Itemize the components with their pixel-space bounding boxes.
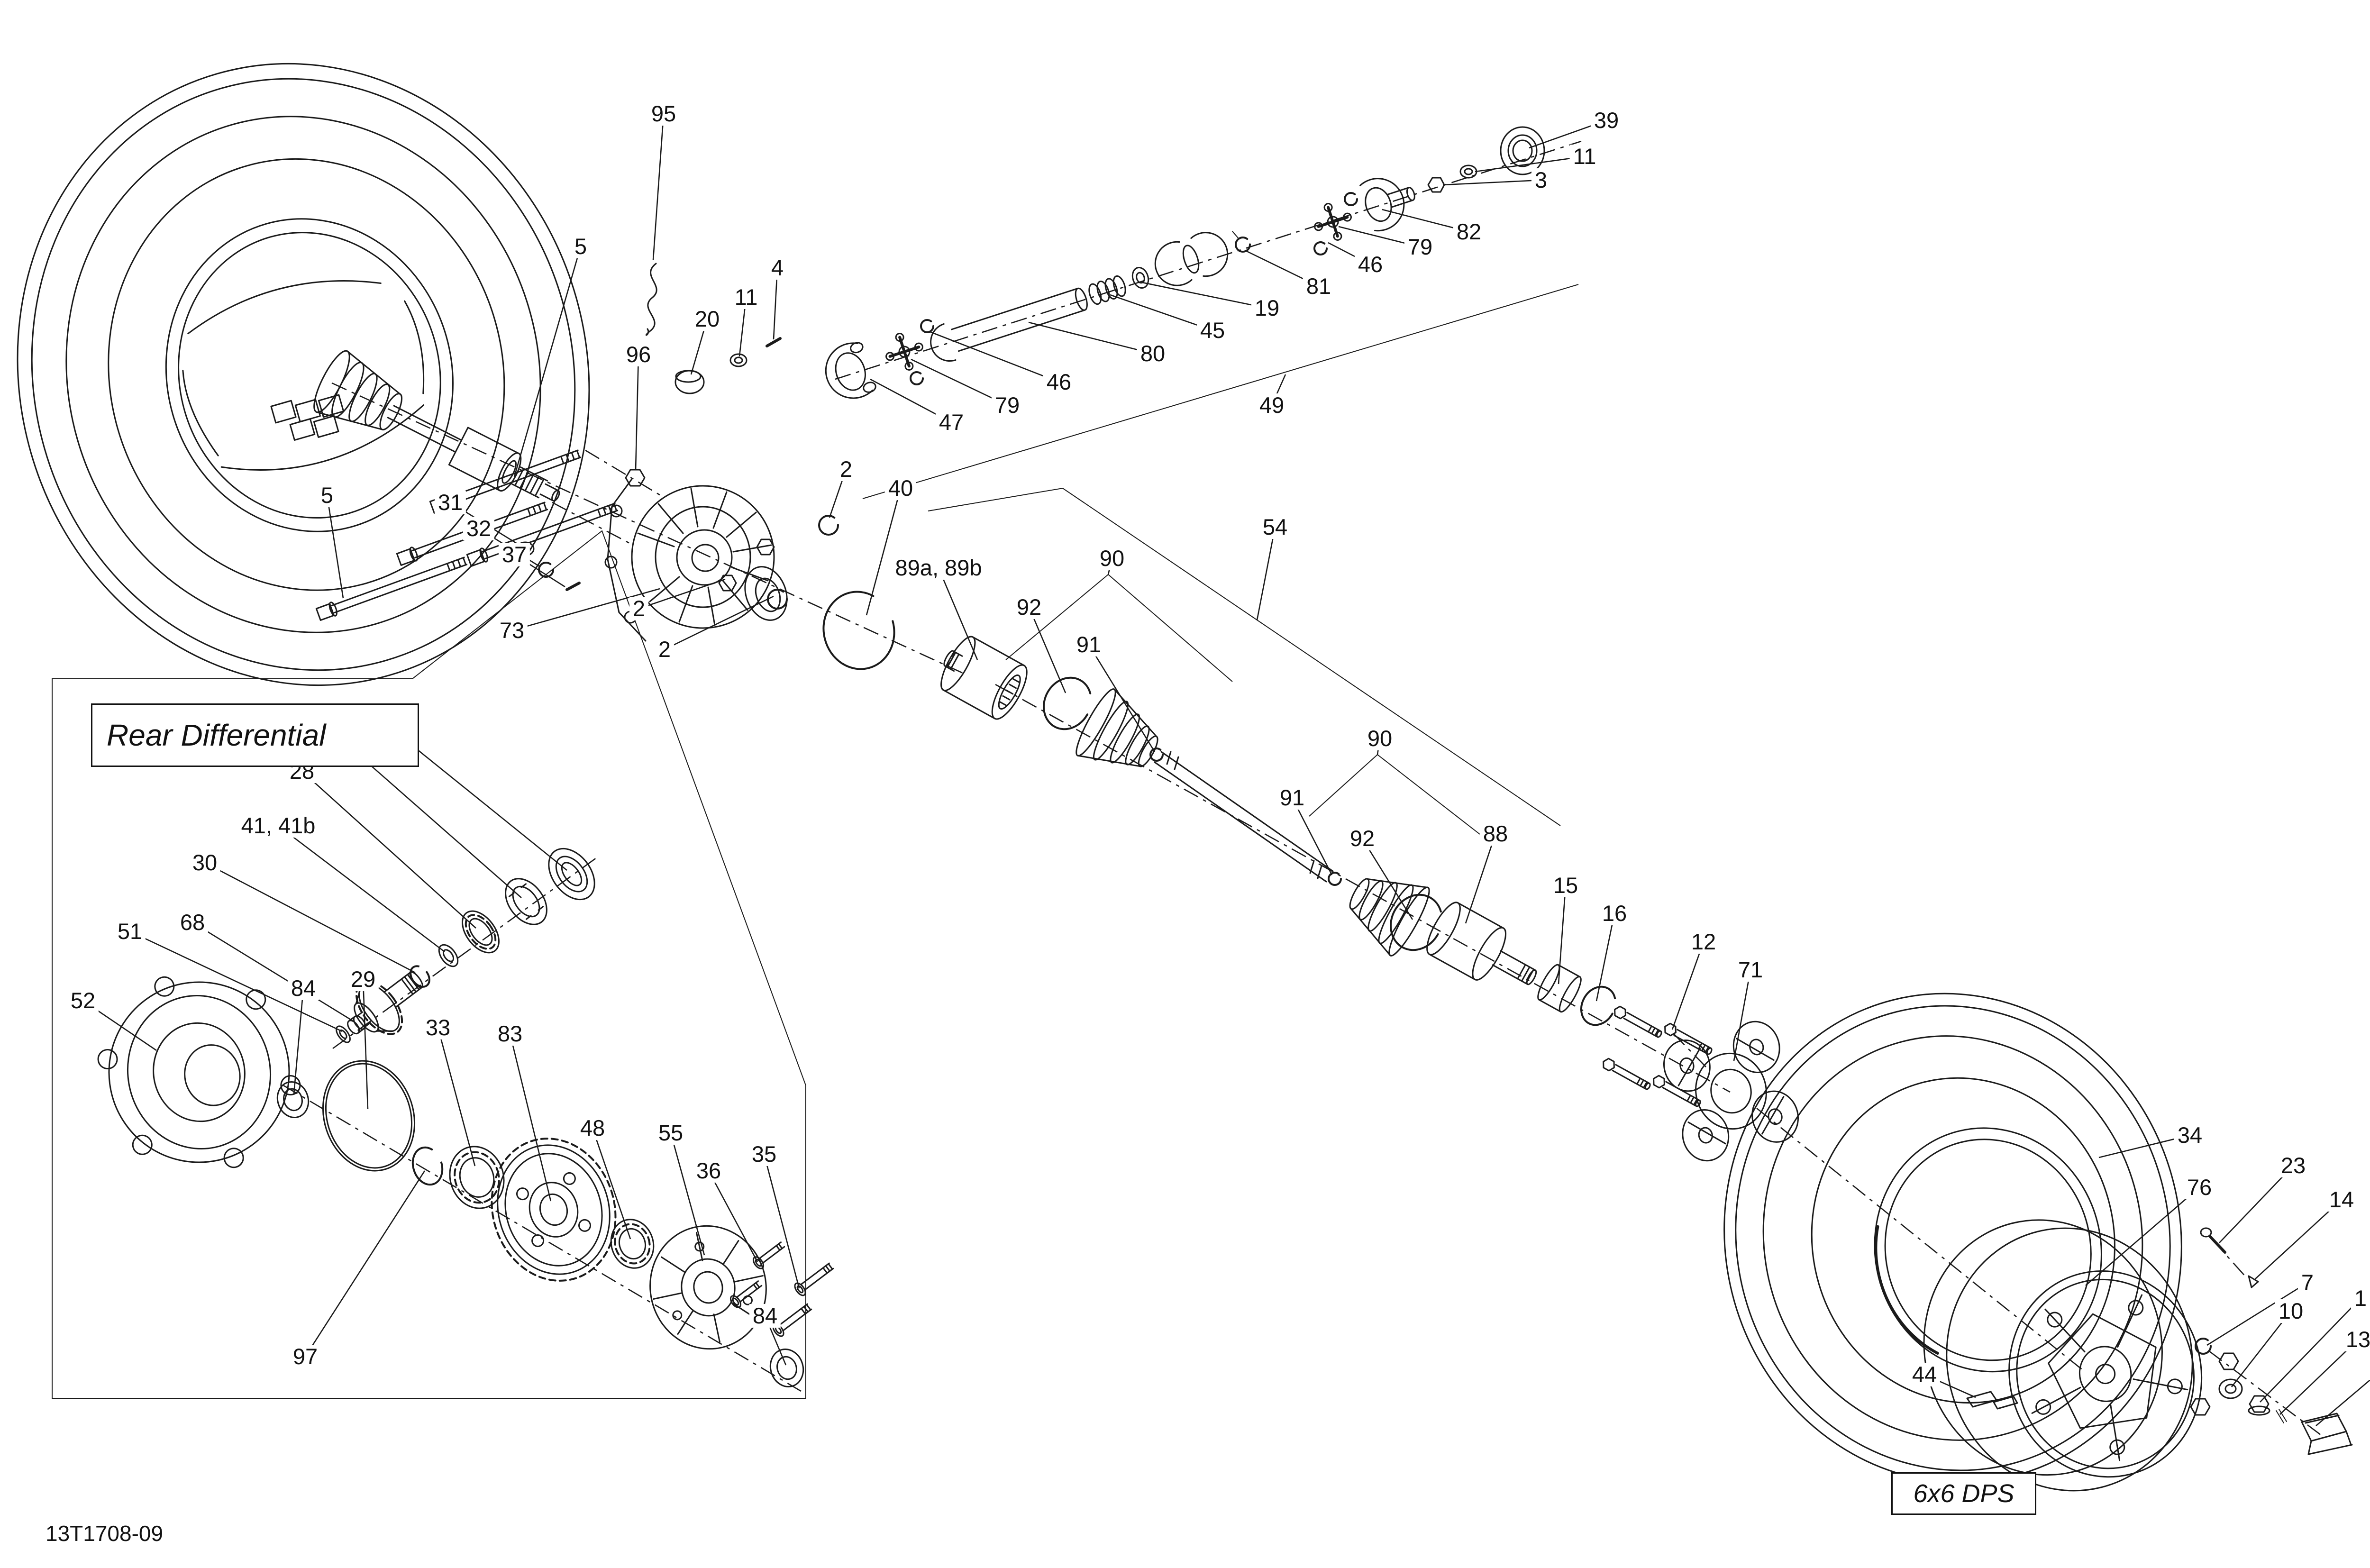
callout-label-88: 88 <box>1480 822 1511 846</box>
callout-leader <box>665 596 774 649</box>
callout-leader <box>1596 913 1614 1001</box>
callout-leader <box>592 1128 630 1239</box>
callout-label-30: 30 <box>189 851 220 875</box>
callout-label-45: 45 <box>1197 319 1228 342</box>
callout-label-20: 20 <box>692 307 723 331</box>
callout-label-83: 83 <box>494 1022 526 1046</box>
callout-leader <box>302 771 476 928</box>
callout-leader <box>1142 283 1267 308</box>
callout-label-73: 73 <box>496 619 528 642</box>
callout-leader <box>1089 645 1155 752</box>
callout-leader <box>438 1028 475 1166</box>
callout-leader <box>1257 527 1275 620</box>
callout-leader <box>514 246 581 477</box>
callout-label-90: 90 <box>1096 547 1128 570</box>
callout-label-5: 5 <box>571 235 590 258</box>
callout-label-84: 84 <box>749 1304 781 1328</box>
callout-label-5: 5 <box>318 483 337 507</box>
callout-label-1: 1 <box>2351 1286 2370 1310</box>
callout-label-32: 32 <box>463 517 494 540</box>
callout-leader <box>327 495 343 598</box>
callout-leader <box>639 579 725 609</box>
callout-leader <box>866 488 901 615</box>
callout-label-46: 46 <box>1355 253 1386 276</box>
callout-label-19: 19 <box>1251 296 1283 320</box>
callout-label-4: 4 <box>768 256 787 280</box>
callout-label-90: 90 <box>1364 727 1395 750</box>
callout-leader <box>1443 180 1541 185</box>
callout-leader <box>305 1171 425 1357</box>
callout-label-39: 39 <box>1591 109 1622 132</box>
callout-label-12: 12 <box>1688 930 1719 954</box>
callout-label-3: 3 <box>1531 168 1550 192</box>
callout-label-34: 34 <box>2174 1123 2206 1147</box>
callout-leader <box>510 1034 551 1201</box>
callout-label-11: 11 <box>1570 145 1600 168</box>
callout-label-91: 91 <box>1073 633 1104 656</box>
callout-label-44: 44 <box>1909 1363 1940 1386</box>
callout-label-80: 80 <box>1137 342 1168 365</box>
callout-label-95: 95 <box>648 102 679 126</box>
callout-leader <box>2316 1368 2370 1426</box>
callout-label-97: 97 <box>290 1345 321 1368</box>
callout-label-79: 79 <box>1404 235 1436 259</box>
callout-label-35: 35 <box>748 1142 780 1166</box>
callout-label-10: 10 <box>2275 1299 2306 1323</box>
callout-label-29: 29 <box>347 967 379 991</box>
parts-diagram-page: 9554112096531323773240224779468045198146… <box>0 0 2370 1568</box>
callout-leader <box>709 1171 757 1262</box>
callout-label-92: 92 <box>1347 827 1378 850</box>
callout-leader <box>671 1133 704 1255</box>
callout-label-48: 48 <box>577 1116 608 1140</box>
callout-label-81: 81 <box>1303 274 1334 298</box>
callout-leader <box>930 332 1059 382</box>
callout-leader <box>1734 970 1750 1061</box>
callout-label-52: 52 <box>67 989 99 1012</box>
callout-label-11: 11 <box>731 285 761 309</box>
callout-leader <box>1559 885 1566 984</box>
callout-label-15: 15 <box>1550 874 1581 897</box>
callout-label-2: 2 <box>837 457 856 481</box>
callout-leader <box>363 979 368 1109</box>
callout-leader <box>653 114 664 260</box>
callout-label-92: 92 <box>1013 595 1045 619</box>
callout-label-49: 49 <box>1256 393 1287 417</box>
callout-label-51: 51 <box>114 920 146 943</box>
callout-label-36: 36 <box>693 1159 724 1183</box>
callout-label-16: 16 <box>1599 902 1630 925</box>
callout-label-54: 54 <box>1259 515 1291 539</box>
callout-leader <box>764 1154 799 1288</box>
drawing-code: 13T1708-09 <box>46 1521 163 1546</box>
callout-label-37: 37 <box>499 543 530 566</box>
callout-leader-layer <box>0 0 2370 1568</box>
callout-leader <box>350 748 521 898</box>
callout-leader <box>1475 156 1585 172</box>
callout-label-40: 40 <box>885 476 916 500</box>
callout-label-46: 46 <box>1043 370 1075 394</box>
callout-label-2: 2 <box>655 638 674 661</box>
callout-label-14: 14 <box>2326 1188 2357 1212</box>
callout-leader <box>205 863 415 973</box>
callout-leader <box>636 355 638 470</box>
callout-leader <box>939 568 977 660</box>
inset-title-box: Rear Differential <box>91 703 419 767</box>
variant-title-box: 6x6 DPS <box>1891 1472 2036 1515</box>
callout-leader <box>278 826 445 952</box>
callout-label-55: 55 <box>655 1121 686 1145</box>
callout-leader <box>2255 1200 2342 1279</box>
callout-leader <box>1466 834 1495 923</box>
callout-leader <box>2086 1187 2199 1285</box>
variant-title-text: 6x6 DPS <box>1913 1479 2014 1508</box>
callout-label-31: 31 <box>435 491 466 514</box>
callout-label-68: 68 <box>177 911 208 934</box>
callout-label-7: 7 <box>2298 1271 2317 1295</box>
callout-label-84: 84 <box>288 976 319 1000</box>
callout-label-71: 71 <box>1735 958 1766 982</box>
callout-leader <box>1029 607 1066 693</box>
callout-label-96: 96 <box>623 343 654 366</box>
callout-label-41-41b: 41, 41b <box>238 814 319 838</box>
callout-leader <box>294 988 303 1094</box>
callout-label-13: 13 <box>2343 1328 2370 1351</box>
callout-label-91: 91 <box>1276 786 1308 810</box>
callout-label-23: 23 <box>2278 1154 2309 1177</box>
callout-label-82: 82 <box>1453 220 1485 244</box>
callout-label-79: 79 <box>992 393 1023 417</box>
callout-leader <box>1029 322 1153 354</box>
callout-leader <box>1672 942 1704 1030</box>
inset-title-text: Rear Differential <box>107 718 326 753</box>
callout-label-33: 33 <box>422 1016 454 1039</box>
callout-label-89a-89b: 89a, 89b <box>892 556 985 580</box>
callout-label-2: 2 <box>629 597 648 620</box>
callout-label-76: 76 <box>2184 1176 2215 1199</box>
callout-label-47: 47 <box>936 410 967 434</box>
